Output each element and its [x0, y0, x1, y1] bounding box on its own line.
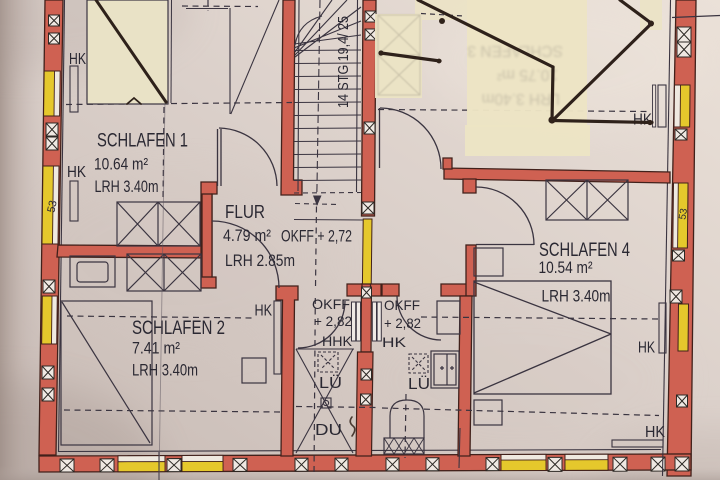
svg-text:HK: HK [382, 334, 407, 350]
svg-text:FLUR: FLUR [225, 202, 265, 222]
svg-text:LRH 3.40m: LRH 3.40m [482, 90, 560, 107]
svg-text:+ 2,82: + 2,82 [314, 313, 352, 329]
svg-text:53: 53 [45, 199, 59, 213]
svg-text:LÜ: LÜ [408, 375, 430, 393]
svg-text:LÜ: LÜ [319, 374, 342, 392]
svg-text:HHK: HHK [322, 333, 353, 349]
svg-text:SCHLAFEN 3: SCHLAFEN 3 [467, 42, 563, 59]
svg-text:LRH 2.85m: LRH 2.85m [225, 251, 295, 270]
svg-text:LRH 3.40m: LRH 3.40m [132, 361, 198, 380]
svg-text:10.75 m²: 10.75 m² [497, 66, 558, 83]
svg-text:14 STG 19,4/ 25: 14 STG 19,4/ 25 [335, 16, 352, 108]
svg-text:HK: HK [638, 340, 655, 357]
svg-text:+ 2,82: + 2,82 [384, 315, 421, 331]
svg-text:SCHLAFEN 1: SCHLAFEN 1 [97, 131, 188, 152]
svg-text:HK: HK [255, 303, 273, 320]
svg-text:7.41 m²: 7.41 m² [132, 339, 180, 358]
svg-text:OKFF: OKFF [384, 297, 420, 313]
svg-text:SCHLAFEN 2: SCHLAFEN 2 [132, 318, 225, 339]
svg-text:10.64 m²: 10.64 m² [94, 155, 148, 174]
svg-text:4.79 m²: 4.79 m² [223, 226, 271, 245]
svg-text:OKFF: OKFF [312, 296, 350, 312]
svg-text:LRH 3.40m: LRH 3.40m [542, 287, 611, 306]
svg-text:HK: HK [645, 424, 665, 441]
svg-text:OKFF + 2,72: OKFF + 2,72 [281, 227, 352, 246]
svg-text:HK: HK [69, 51, 86, 68]
svg-text:LRH 3.40m: LRH 3.40m [95, 177, 159, 196]
svg-text:10.54 m²: 10.54 m² [539, 258, 593, 277]
svg-text:HK: HK [67, 164, 86, 181]
svg-text:DU: DU [315, 422, 342, 439]
